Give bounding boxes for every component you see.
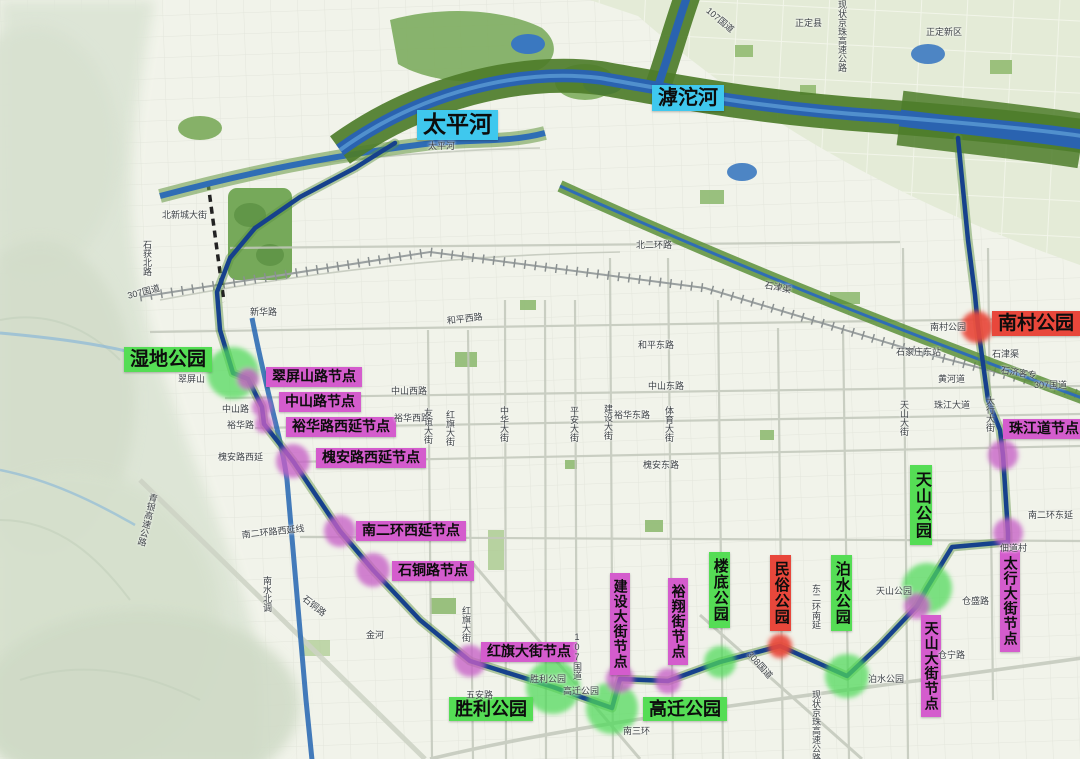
map-text: 裕华东路	[614, 408, 650, 421]
river-label: 滹沱河	[652, 85, 724, 111]
map-text: 石获北路	[141, 240, 154, 276]
node-label: 珠江道节点	[1003, 419, 1080, 439]
map-text: 和平西路	[446, 310, 483, 327]
map-text: 北二环路	[636, 238, 672, 251]
map-text: 体育大街	[663, 406, 676, 442]
node-label: 裕华路西延节点	[286, 417, 396, 437]
map-text: 珠江大道	[934, 398, 970, 411]
map-text: 建设大街	[602, 404, 615, 440]
map-text: 新华路	[250, 305, 277, 318]
park-label: 天山公园	[910, 465, 932, 545]
map-text: 现状京珠高速公路	[836, 0, 849, 72]
map-text: 中山路	[222, 402, 249, 415]
map-text: 石津渠	[764, 278, 793, 296]
node-label: 建设大街节点	[610, 573, 630, 675]
map-text: 东二环南延	[810, 584, 823, 629]
map-text: 红旗大街	[460, 606, 473, 642]
map-text: 107国道	[571, 632, 584, 680]
map-text: 仓宁路	[938, 648, 965, 661]
node-label: 红旗大街节点	[481, 642, 577, 662]
node-label: 中山路节点	[279, 392, 361, 412]
map-text: 南二环路西延线	[241, 521, 305, 541]
map-text: 中山西路	[391, 384, 427, 397]
map-text: 友谊大街	[422, 408, 435, 444]
map-text: 高迁公园	[563, 684, 599, 697]
map-text: 泊水公园	[868, 672, 904, 685]
map-text: 天山大街	[898, 400, 911, 436]
map-text: 307国道	[126, 281, 161, 302]
map-text: 平安大街	[568, 406, 581, 442]
node-label: 南二环西延节点	[356, 521, 466, 541]
map-text: 307国道	[1034, 378, 1067, 391]
map-stage: 太平河滹沱河南村公园湿地公园翠屏山路节点中山路节点裕华路西延节点槐安路西延节点南…	[0, 0, 1080, 759]
map-text: 南水北调	[261, 576, 274, 612]
map-text: 佃道村	[1000, 541, 1027, 554]
node-label: 槐安路西延节点	[316, 448, 426, 468]
map-text: 中山东路	[648, 379, 684, 392]
map-text: 青银高速公路	[135, 492, 161, 548]
map-text: 槐安路西延	[218, 450, 263, 463]
node-label: 翠屏山路节点	[266, 367, 362, 387]
map-text: 中华大街	[498, 406, 511, 442]
map-text: 107国道	[704, 4, 738, 35]
map-text: 石济客专	[1000, 363, 1038, 381]
map-text: 石家庄东站	[896, 345, 941, 358]
red-park-label: 南村公园	[992, 311, 1080, 336]
map-text: 天山公园	[876, 584, 912, 597]
node-label: 天山大街节点	[921, 615, 941, 717]
node-label: 太行大街节点	[1000, 550, 1020, 652]
node-label: 裕翔街节点	[668, 578, 688, 665]
map-text: 南村公园	[930, 320, 966, 333]
map-text: 现状京珠高速公路	[810, 690, 823, 759]
labels-layer: 太平河滹沱河南村公园湿地公园翠屏山路节点中山路节点裕华路西延节点槐安路西延节点南…	[0, 0, 1080, 759]
map-text: 和平东路	[638, 338, 674, 351]
park-label: 泊水公园	[831, 555, 852, 631]
map-text: 308国道	[744, 648, 776, 681]
map-text: 翠屏山	[178, 372, 205, 385]
map-text: 南二环东延	[1028, 508, 1073, 521]
map-text: 五安路	[466, 688, 493, 701]
map-text: 北新城大街	[162, 208, 207, 221]
park-label: 高迁公园	[643, 697, 727, 721]
map-text: 正定新区	[926, 25, 962, 38]
map-text: 金河	[366, 628, 384, 641]
park-label: 楼底公园	[709, 552, 730, 628]
map-text: 正定县	[795, 16, 822, 29]
map-text: 南三环	[623, 724, 650, 737]
node-label: 石铜路节点	[392, 561, 474, 581]
map-text: 太平河	[428, 139, 455, 152]
map-text: 黄河道	[938, 372, 965, 385]
map-text: 石津渠	[992, 347, 1019, 360]
map-text: 裕华路	[227, 418, 254, 431]
map-text: 仓盛路	[962, 594, 989, 607]
map-text: 石铜路	[300, 592, 329, 619]
map-text: 太行大街	[984, 396, 997, 432]
map-text: 槐安东路	[643, 458, 679, 471]
map-text: 红旗大街	[444, 410, 457, 446]
park-label: 湿地公园	[124, 347, 212, 372]
map-text: 胜利公园	[530, 672, 566, 685]
red-park-label: 民俗公园	[770, 555, 791, 631]
river-label: 太平河	[417, 110, 498, 140]
